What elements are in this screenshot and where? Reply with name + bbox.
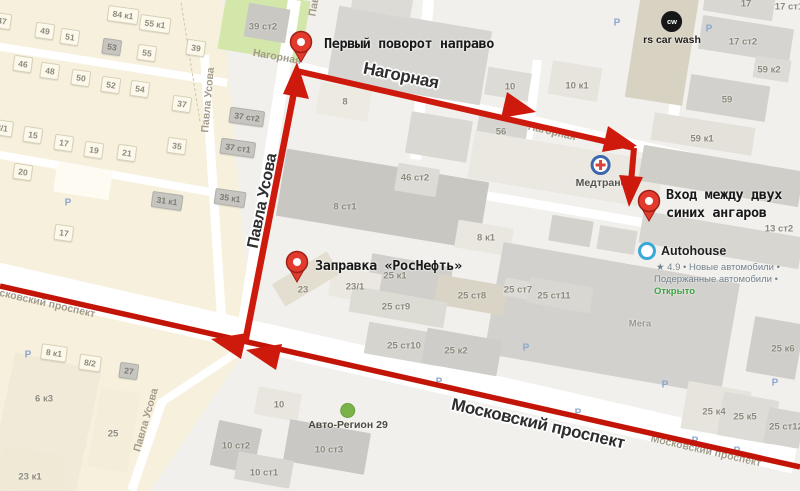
annotation-first-turn: Первый поворот направо [324, 36, 494, 54]
route-arrowhead-west-2 [246, 344, 282, 370]
route-arrowhead-north [283, 62, 309, 99]
route-line-nagornaya [297, 71, 634, 148]
annotation-entrance: Вход между двух синих ангаров [666, 187, 782, 222]
prospect-route-line [0, 286, 800, 467]
annotation-entrance-line2: синих ангаров [666, 205, 782, 223]
annotation-entrance-line1: Вход между двух [666, 187, 782, 205]
map-canvas[interactable]: cw rs car wash Медтранс Autohouse ★ 4.9 … [0, 0, 800, 491]
annotation-gas-station: Заправка «РосНефть» [315, 258, 462, 276]
route-arrowhead-east-1 [501, 92, 536, 118]
pin-first-turn[interactable] [291, 32, 312, 63]
pin-gas-station[interactable] [287, 252, 308, 283]
pin-entrance[interactable] [639, 191, 660, 222]
route-overlay [0, 0, 800, 491]
route-line-pavla-usova [245, 92, 294, 343]
